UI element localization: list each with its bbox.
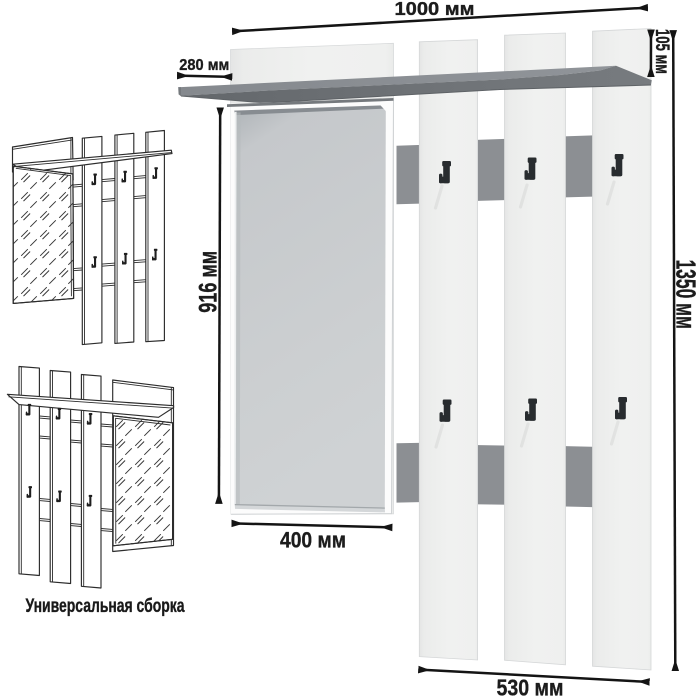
svg-text:530 мм: 530 мм: [497, 675, 564, 700]
svg-text:Универсальная сборка: Универсальная сборка: [26, 596, 185, 617]
svg-text:916 мм: 916 мм: [194, 251, 222, 313]
svg-text:105 мм: 105 мм: [651, 29, 672, 74]
svg-text:1350 мм: 1350 мм: [670, 259, 700, 329]
svg-text:400 мм: 400 мм: [280, 527, 346, 552]
svg-text:1000 мм: 1000 мм: [395, 0, 475, 19]
svg-text:280 мм: 280 мм: [179, 57, 229, 74]
